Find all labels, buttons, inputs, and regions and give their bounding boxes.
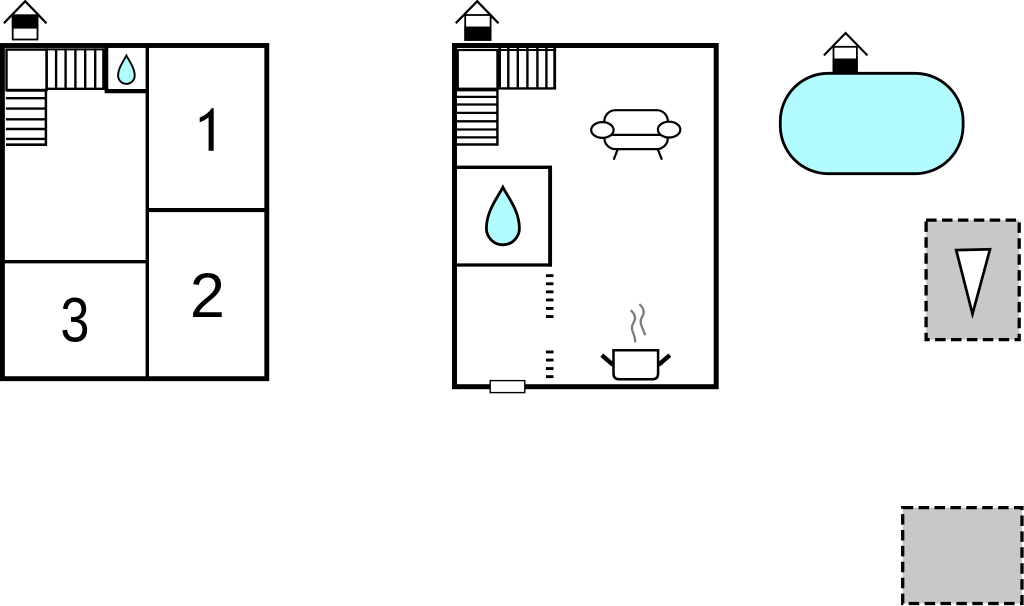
svg-text:3: 3 <box>60 286 89 356</box>
svg-text:2: 2 <box>190 261 225 331</box>
